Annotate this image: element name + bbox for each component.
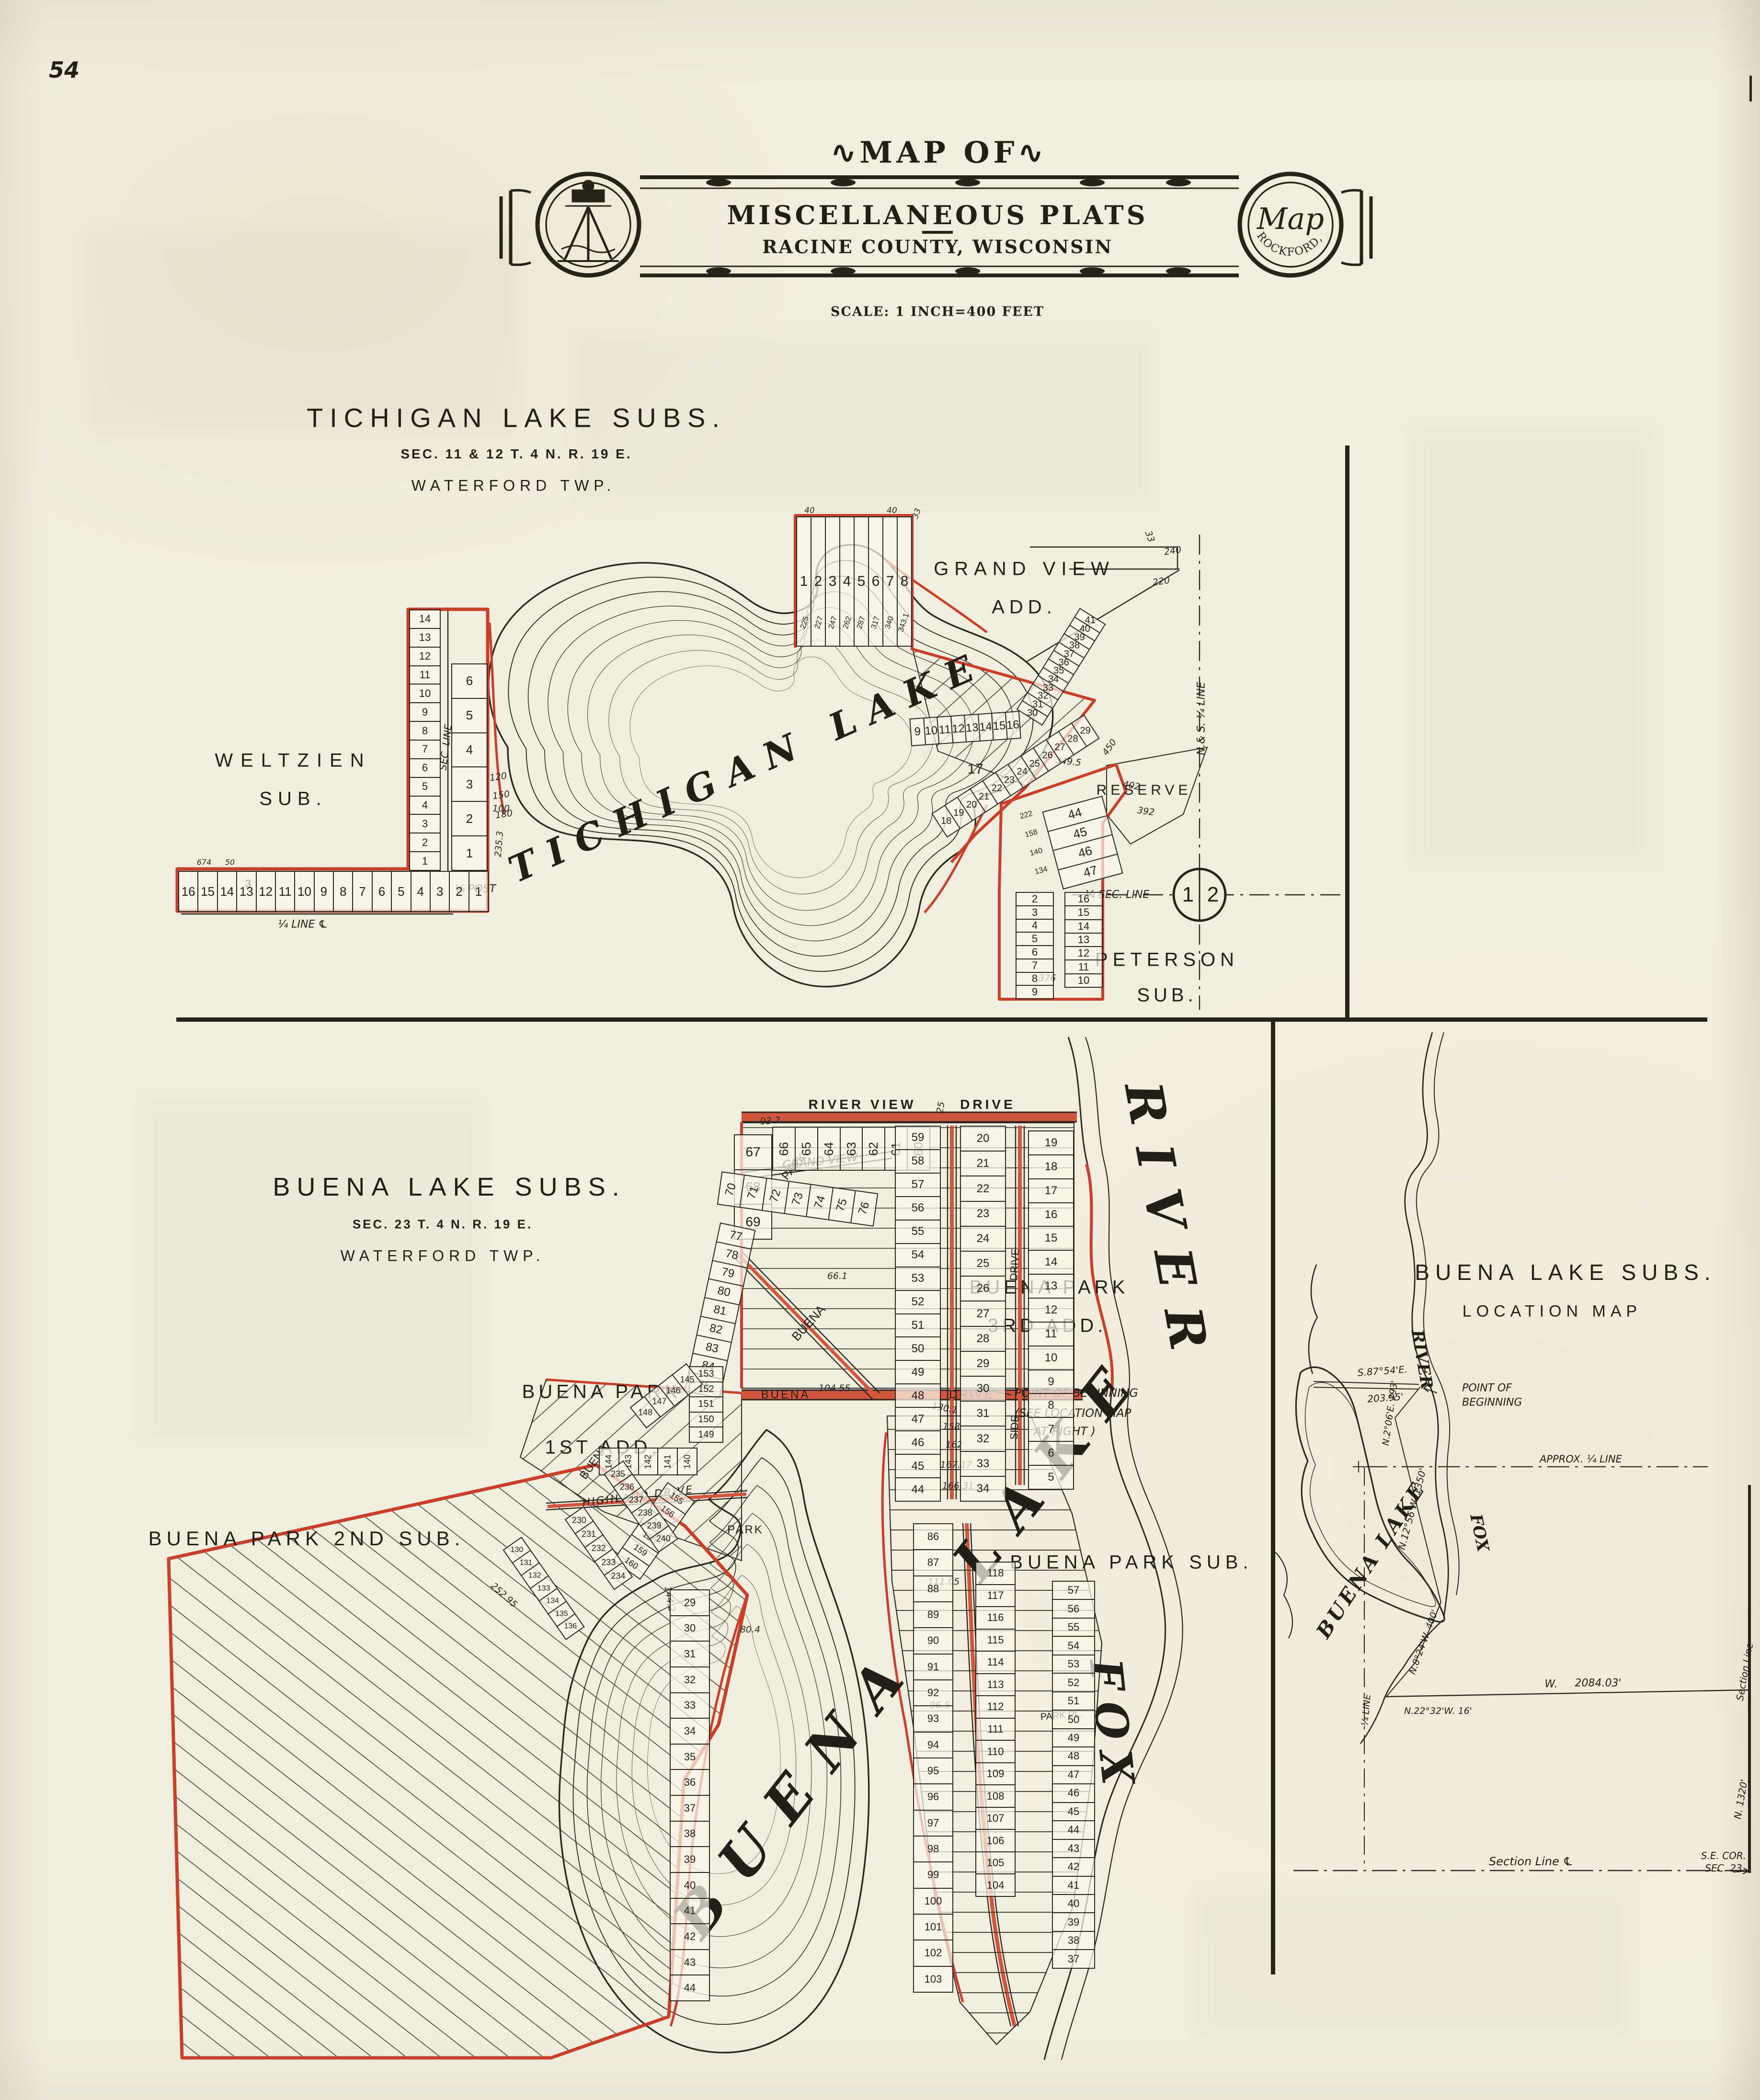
dimension: 25 (935, 1101, 947, 1114)
lot-number: 3 (430, 872, 449, 911)
lot-number: 14 (410, 610, 440, 628)
lot-number: 31 (671, 1641, 709, 1666)
lot-number: 10 (923, 718, 938, 744)
lot-number: 44 (1053, 1820, 1094, 1838)
lot-number: 8 (1017, 972, 1053, 985)
lot-number: 48 (896, 1383, 940, 1407)
lot-number: 11 (275, 872, 294, 911)
lot-number: 27 (961, 1301, 1005, 1325)
lot-number: 14 (217, 872, 236, 911)
lot-number: 116 (976, 1606, 1015, 1629)
lot-number: 48 (1053, 1746, 1094, 1765)
lot-number: 3 (410, 814, 440, 833)
lot-number: 59 (896, 1127, 940, 1149)
lot-number: 42 (671, 1923, 709, 1949)
lot-number: 40 (1053, 1894, 1094, 1912)
street-river-view: RIVER VIEW (809, 1097, 916, 1112)
se-corner-label: S.E. COR. (1701, 1850, 1746, 1861)
location-pob-label-2: BEGINNING (1462, 1397, 1522, 1409)
lot-number: 55 (896, 1220, 940, 1243)
lot-number: 44 (671, 1974, 709, 2000)
lot-number: 98 (914, 1836, 952, 1861)
lot-number: 12 (950, 716, 966, 742)
approx-quarter-line-label: APPROX. ¼ LINE (1540, 1453, 1622, 1465)
lot-number: 9 (314, 872, 333, 911)
lot-number: 107 (976, 1807, 1015, 1829)
lot-number: 33 (961, 1451, 1005, 1476)
lot-number: 67 (735, 1135, 771, 1169)
quarter-line-label: ¼ LINE ℄ (278, 919, 328, 931)
location-pob-label: POINT OF (1462, 1382, 1512, 1394)
lot-number: 7 (410, 740, 440, 758)
dimension: 50 (225, 858, 235, 867)
lot-number: 9 (410, 702, 440, 721)
lot-number: 110 (976, 1740, 1015, 1762)
lot-number: 5 (452, 698, 487, 732)
lot-number: 16 (1005, 712, 1020, 739)
lot-number: 13 (236, 872, 255, 911)
lot-number: 53 (1053, 1655, 1094, 1673)
bearing-4: N.22°32'W. 16' (1404, 1706, 1472, 1716)
lot-number: 227 (812, 600, 827, 646)
lot-number: 287 (855, 600, 869, 646)
lot-number: 14 (978, 714, 993, 741)
lot-number: 6 (410, 758, 440, 777)
grand-view-add-label-2: ADD. (992, 597, 1057, 618)
peterson-sub-label-2: SUB. (1137, 985, 1197, 1006)
tichigan-title: TICHIGAN LAKE SUBS. (307, 402, 726, 434)
lot-number: 15 (1029, 1226, 1073, 1250)
lot-number: 32 (671, 1666, 709, 1692)
lot-number: 52 (896, 1290, 940, 1313)
tichigan-township: WATERFORD TWP. (411, 477, 616, 495)
lot-number: 92 (914, 1679, 952, 1705)
lot-number: 16 (179, 872, 197, 911)
lot-number: 87 (914, 1549, 952, 1575)
tichigan-section-desc: SEC. 11 & 12 T. 4 N. R. 19 E. (400, 446, 632, 462)
lot-number: 66 (773, 1128, 795, 1170)
lot-number: 5 (1017, 932, 1053, 945)
lot-number: 97 (914, 1810, 952, 1836)
park-sub-column-b: 1181171161151141131121111101091081071061… (975, 1562, 1016, 1897)
lot-number: 100 (914, 1888, 952, 1914)
lot-number: 16 (1065, 893, 1102, 905)
lot-number: 49 (896, 1360, 940, 1383)
lot-number: 106 (976, 1829, 1015, 1851)
second-sub-label: BUENA PARK 2ND SUB. (149, 1527, 465, 1550)
lot-number: 8 (410, 721, 440, 740)
flourish-left: ∿ (831, 135, 860, 170)
lot-number: 151 (690, 1396, 722, 1412)
dimension: 40 (804, 506, 815, 515)
lot-number: 31 (961, 1401, 1005, 1426)
lot-number: 10 (1065, 973, 1102, 987)
dimension: 66.1 (827, 1271, 847, 1281)
lot-number: 37 (671, 1795, 709, 1821)
weltzien-lot-column-b: 654321 (451, 663, 488, 871)
weltzien-lot-row: 16151413121110987654321 (178, 871, 489, 912)
lot-number: 57 (1053, 1582, 1094, 1599)
buena-township: WATERFORD TWP. (341, 1247, 545, 1265)
lot-number: 17 (1029, 1178, 1073, 1202)
lot-number: 91 (914, 1654, 952, 1679)
lot-number: 35 (671, 1744, 709, 1769)
lot-number: 64 (817, 1128, 840, 1170)
lot-number: 39 (671, 1846, 709, 1872)
lot-number: 7 (1029, 1417, 1073, 1441)
lot-number: 115 (976, 1629, 1015, 1651)
buena-title: BUENA LAKE SUBS. (273, 1172, 626, 1202)
lot-number: 38 (1053, 1931, 1094, 1949)
lot-number: 13 (1029, 1274, 1073, 1298)
lot-number: 43 (671, 1949, 709, 1975)
lot-number: 28 (961, 1326, 1005, 1351)
lot-number: 262 (841, 600, 855, 646)
lot-number: 112 (976, 1695, 1015, 1718)
lot-number: 93 (914, 1705, 952, 1731)
header-map-of: ∿MAP OF∿ (831, 135, 1047, 170)
lot-number: 15 (197, 872, 217, 911)
map-scale: SCALE: 1 INCH=400 FEET (831, 305, 1044, 320)
lot-number: 9 (1017, 985, 1053, 998)
lot-number: 94 (914, 1732, 952, 1758)
lot-number: 4 (1017, 919, 1053, 932)
lot-number: 32 (961, 1426, 1005, 1450)
lot-number: 9 (910, 719, 925, 745)
lot-number: 113 (976, 1673, 1015, 1696)
lot-number: 2 (452, 801, 487, 835)
street-side: SIDE (1008, 1415, 1022, 1440)
lot-number: 142 (638, 1449, 658, 1474)
lot-number: 41 (671, 1898, 709, 1924)
lot-number: 108 (976, 1784, 1015, 1807)
weltzien-lot-column-a: 1413121110987654321 (409, 609, 441, 871)
lot-number: 15 (1065, 905, 1102, 919)
surveyor-transit-illustration (558, 181, 619, 261)
park-sub-column-c: 5756555453525150494847464544434241403938… (1052, 1581, 1095, 1969)
west-line-label: W. (1545, 1678, 1558, 1690)
lot-number: 34 (671, 1718, 709, 1744)
section-number-1: 1 (1182, 883, 1194, 907)
lot-number: 46 (1053, 1783, 1094, 1802)
lot-number: 13 (964, 715, 979, 742)
lot-number: 25 (961, 1251, 1005, 1276)
lot-number: 88 (914, 1575, 952, 1601)
lot-number: 76 (850, 1191, 877, 1225)
lot-number: 6 (452, 664, 487, 698)
dimension: 104.55 (819, 1383, 850, 1393)
lot-number: 33 (671, 1692, 709, 1718)
lot-number: 11 (410, 665, 440, 684)
lot-number: 9 (1029, 1370, 1073, 1393)
lot-number: 95 (914, 1758, 952, 1783)
lot-number: 19 (1029, 1131, 1073, 1154)
lot-number: 6 (1029, 1441, 1073, 1465)
lot-number: 54 (896, 1243, 940, 1267)
lot-number: 141 (657, 1449, 677, 1474)
lot-number: 5 (391, 872, 410, 911)
lot-number: 86 (914, 1524, 952, 1549)
lot-number: 56 (896, 1196, 940, 1220)
lot-number: 46 (896, 1430, 940, 1454)
lot-number: 15 (991, 713, 1006, 740)
lot-number: 13 (1065, 933, 1102, 946)
lot-number: 65 (795, 1128, 817, 1170)
page-subtitle: RACINE COUNTY, WISCONSIN (762, 236, 1113, 258)
lot-number: 52 (1053, 1673, 1094, 1691)
lot-number: 114 (976, 1651, 1015, 1673)
lot-number: 102 (914, 1940, 952, 1965)
lot-number: 10 (294, 872, 313, 911)
grand-view-add-label: GRAND VIEW (934, 559, 1115, 580)
lot-number: 150 (690, 1412, 722, 1427)
west-line-distance: 2084.03' (1575, 1678, 1621, 1689)
lot-number: 1 (452, 835, 487, 870)
lot-number: 63 (840, 1128, 862, 1170)
lot-number: 8 (1029, 1393, 1073, 1417)
lot-number: 11 (1065, 959, 1102, 973)
flourish-right: ∿ (1018, 135, 1047, 170)
lot-number: 4 (411, 872, 430, 911)
location-map-subtitle: LOCATION MAP (1463, 1302, 1642, 1321)
lot-number: 58 (896, 1149, 940, 1173)
lot-number: 29 (671, 1590, 709, 1615)
title-divider (922, 231, 953, 234)
lot-number: 8 (333, 872, 352, 911)
lot-number: 104 (976, 1873, 1015, 1896)
lot-number: 6 (1017, 945, 1053, 959)
lot-number: 55 (1053, 1618, 1094, 1636)
weltzien-sub-label: WELTZIEN (215, 750, 371, 772)
lot-number: 45 (896, 1454, 940, 1477)
lot-number: 23 (961, 1201, 1005, 1226)
lot-number: 51 (896, 1313, 940, 1337)
lot-number: 89 (914, 1601, 952, 1627)
se-corner-label-2: SEC. 23 (1705, 1862, 1742, 1874)
page-number: 54 (49, 57, 80, 83)
section-number-2: 2 (1207, 883, 1219, 907)
lot-number: 50 (896, 1336, 940, 1360)
location-map-title: BUENA LAKE SUBS. (1415, 1259, 1716, 1285)
lot-number: 96 (914, 1783, 952, 1809)
lot-number: 45 (1053, 1802, 1094, 1820)
lot-number: 54 (1053, 1636, 1094, 1654)
lot-number: 30 (961, 1376, 1005, 1401)
lot-number: 18 (1029, 1154, 1073, 1178)
lot-number: 43 (1053, 1839, 1094, 1857)
lot-number: 10 (1029, 1346, 1073, 1370)
lot-number: 42 (1053, 1857, 1094, 1875)
lot-number: 117 (976, 1584, 1015, 1607)
lot-number: 5 (1029, 1465, 1073, 1489)
lot-number: 24 (961, 1226, 1005, 1251)
lot-number: 3 (1017, 905, 1053, 919)
lot-number: 12 (256, 872, 275, 911)
lot-number: 149 (690, 1427, 722, 1442)
peterson-sub-label: PETERSON (1095, 949, 1239, 971)
dimension: 158 (943, 1421, 960, 1432)
lot-number: 6 (372, 872, 391, 911)
reserve-label: RESERVE (1097, 782, 1192, 799)
lot-number: 47 (896, 1407, 940, 1430)
lot-number: 2 (1017, 893, 1053, 905)
lot-number: 16 (1029, 1202, 1073, 1226)
lot-number: 12 (410, 647, 440, 665)
grand-view-lot-dimensions: 225227247262287317340343.1 (798, 600, 911, 646)
lot-number: 90 (914, 1627, 952, 1653)
lot-number: 57 (896, 1173, 940, 1196)
lot-number: 317 (869, 600, 883, 646)
lot-number: 30 (671, 1615, 709, 1641)
lot-number: 36 (671, 1769, 709, 1795)
lot-number: 51 (1053, 1691, 1094, 1710)
park-sub-column-a: 8687888990919293949596979899100101102103 (913, 1523, 953, 1993)
weltzien-sub-label-2: SUB. (259, 788, 327, 810)
park-sub-label: BUENA PARK SUB. (1010, 1552, 1253, 1574)
lot-number: 7 (352, 872, 371, 911)
buena-section-desc: SEC. 23 T. 4 N. R. 19 E. (353, 1217, 533, 1232)
atlas-page: Map ROCKFORD, ILL. 54 ∿MAP OF∿ MISCELLAN… (0, 0, 1760, 2100)
lot-number: 14 (1029, 1250, 1073, 1274)
seal-script: Map (1257, 201, 1324, 236)
lot-column-c: 1918171615141312111098765 (1028, 1130, 1074, 1490)
lot-number: 37 (1053, 1949, 1094, 1967)
lot-number: 4 (452, 732, 487, 767)
lot-number: 62 (862, 1128, 884, 1170)
lot-number: 103 (914, 1966, 952, 1992)
lot-number: 11 (937, 717, 952, 743)
lot-number: 140 (677, 1449, 697, 1474)
lot-number: 1 (469, 872, 488, 911)
lot-number: 5 (410, 777, 440, 796)
peterson-lot-column-b: 16151413121110 (1064, 892, 1103, 988)
lot-number: 343.1 (897, 600, 912, 646)
lot-number: 40 (671, 1872, 709, 1898)
street-side-drive: DRIVE (1007, 1248, 1021, 1281)
second-sub-shore-column: 29303132333435363738394041424344 (670, 1589, 710, 2001)
lot-number: 39 (1053, 1912, 1094, 1930)
lot-number: 101 (914, 1914, 952, 1940)
peterson-lot-column-a: 23456789 (1016, 892, 1054, 999)
lot-number: 1 (410, 851, 440, 870)
lot-number: 47 (1053, 1765, 1094, 1783)
lot-number: 12 (1065, 946, 1102, 959)
lot-number: 3 (452, 766, 487, 801)
lot-number: 56 (1053, 1599, 1094, 1617)
street-drive-top: DRIVE (960, 1097, 1016, 1112)
lot-number: 29 (961, 1351, 1005, 1376)
lot-number: 7 (1017, 959, 1053, 972)
lot-number: 22 (961, 1176, 1005, 1200)
lot-number: 2 (449, 872, 468, 911)
lot-number: 26 (961, 1276, 1005, 1301)
ns-quarter-line-label: N.& S. ¼ LINE (1196, 682, 1208, 755)
lot-number: 111 (976, 1718, 1015, 1740)
lot-number: 4 (410, 796, 440, 814)
page-title: MISCELLANEOUS PLATS (727, 200, 1148, 230)
lot-number: 2 (410, 833, 440, 851)
lot-number: 44 (896, 1477, 940, 1501)
lot-number: 99 (914, 1861, 952, 1887)
dimension: 93 2 (760, 1115, 781, 1127)
lot-number: 20 (961, 1127, 1005, 1151)
lot-number: 38 (671, 1821, 709, 1847)
lot-number: 225 (798, 600, 812, 646)
lot-number: 105 (976, 1851, 1015, 1874)
lot-column-a: 59585756555453525150494847464544 (895, 1126, 941, 1502)
dimension: 40 (887, 506, 897, 515)
dimension: 674 (197, 858, 212, 867)
lot-number: 41 (1053, 1876, 1094, 1894)
lot-number: 11 (1029, 1322, 1073, 1346)
lot-number: 49 (1053, 1728, 1094, 1746)
lot-number: 13 (410, 628, 440, 647)
lot-number: 247 (826, 600, 841, 646)
lot-number: 53 (896, 1267, 940, 1290)
lot-number: 12 (1029, 1298, 1073, 1322)
lot-column-b: 202122232425262728293031323334 (960, 1126, 1006, 1502)
lot-17-label: 17 (967, 761, 983, 777)
lot-number: 14 (1065, 919, 1102, 933)
street-buena: BUENA (761, 1388, 811, 1402)
lot-number: 34 (961, 1476, 1005, 1501)
lot-number: 118 (976, 1563, 1015, 1584)
lot-number: 21 (961, 1151, 1005, 1176)
lot-number: 340 (883, 600, 897, 646)
lot-number: 109 (976, 1762, 1015, 1785)
section-line-bottom-label: Section Line ℄ (1489, 1855, 1573, 1868)
lot-number: 50 (1053, 1710, 1094, 1728)
lot-number: 10 (410, 684, 440, 702)
park-label: PARK (727, 1523, 764, 1537)
dimension: 80.4 (740, 1624, 760, 1635)
